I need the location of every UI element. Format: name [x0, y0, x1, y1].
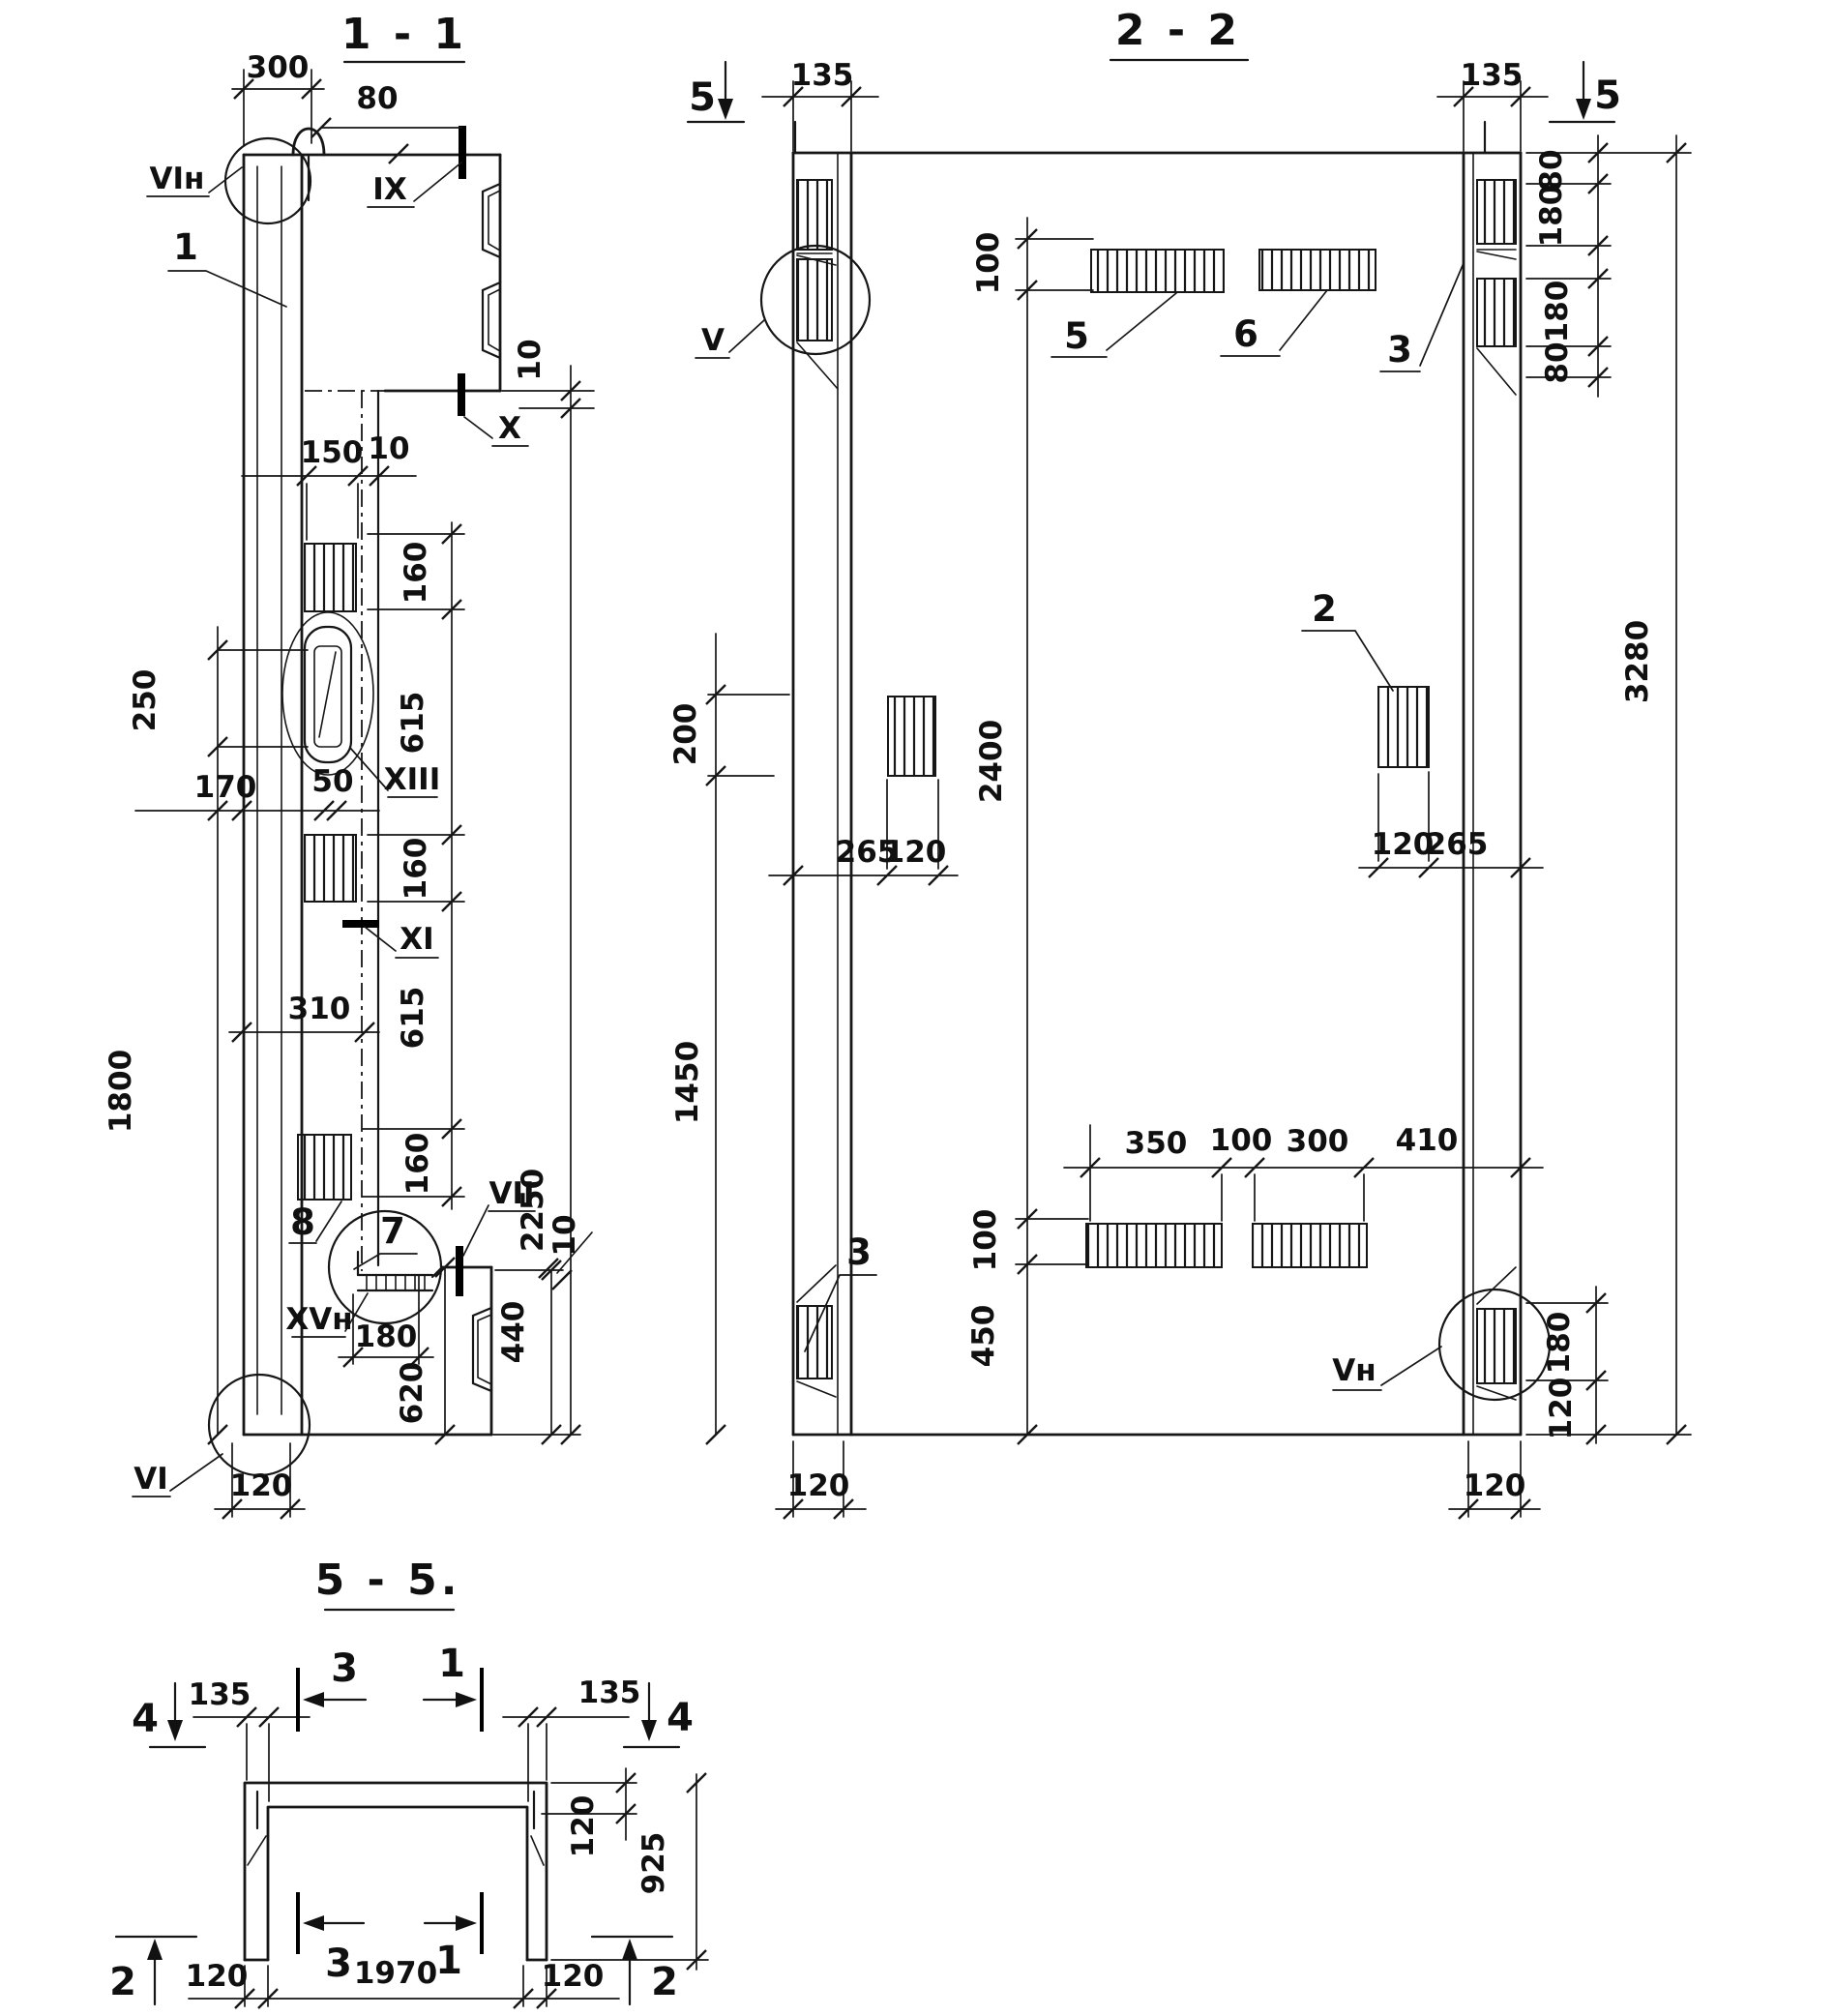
- dim-label: 10: [548, 1214, 582, 1256]
- callout-5: 5: [1051, 293, 1176, 357]
- dim-80: 80: [311, 81, 461, 163]
- dim-label: 135: [189, 1677, 252, 1712]
- dim-label: 120: [186, 1959, 249, 1994]
- dim-label: 250: [128, 669, 163, 732]
- dim-120-bottom-left: 120: [776, 1441, 866, 1519]
- dim-label: 160: [399, 542, 433, 605]
- dim-120-slab: 120: [542, 1768, 636, 1857]
- marker-label: 2: [651, 1960, 678, 2004]
- dim-300: 300: [232, 50, 324, 145]
- section-marker-5-left: 5: [688, 62, 744, 122]
- dim-label: 100: [1210, 1123, 1273, 1158]
- dim-label: 925: [636, 1832, 671, 1895]
- mark-label: XI: [400, 922, 433, 957]
- dim-label: 2400: [974, 720, 1009, 803]
- dim-label: 615: [396, 692, 430, 755]
- dim-label: 300: [1287, 1124, 1349, 1159]
- dim-label: 170: [194, 770, 257, 805]
- mark-label: X: [498, 411, 521, 446]
- section-1-1: 1 - 1: [104, 10, 594, 1519]
- dim-265-120-left: 265 120: [769, 780, 958, 885]
- callout-label: 6: [1233, 313, 1258, 355]
- dim-440: 440: [493, 1260, 580, 1444]
- dim-120-bottom-right: 120: [1449, 1441, 1540, 1519]
- dim-135-left: 135: [762, 58, 878, 151]
- dim-label: 200: [668, 703, 703, 766]
- dim-label: 620: [395, 1362, 429, 1425]
- section-2-2-title: 2 - 2: [1115, 6, 1241, 55]
- section-marker-5-right: 5: [1550, 62, 1621, 122]
- section-5-5-title: 5 - 5.: [315, 1556, 461, 1605]
- mark-label: Vн: [1332, 1353, 1376, 1388]
- cut-marker-3-top: 3: [298, 1646, 366, 1732]
- dim-label: 100: [971, 232, 1006, 295]
- marker-label: 4: [666, 1696, 694, 1740]
- dim-label: 10: [513, 339, 548, 380]
- dim-chain-bottom: 350 100 300 410: [1064, 1123, 1543, 1221]
- dim-label: 120: [787, 1468, 850, 1503]
- callout-7: 7: [354, 1210, 417, 1269]
- callout-label: 7: [380, 1210, 405, 1252]
- mark-vi: VI: [133, 1454, 222, 1497]
- dim-label: 160: [399, 838, 433, 901]
- callout-3-right: 3: [1380, 263, 1464, 371]
- section-2-2: 2 - 2: [668, 6, 1691, 1519]
- section-marker-2-right: 2: [592, 1937, 678, 2004]
- dim-label: 180: [1542, 1312, 1577, 1375]
- dim-label: 410: [1396, 1123, 1459, 1158]
- callout-2: 2: [1302, 588, 1393, 691]
- dim-chain-far-left: 200 1450: [668, 634, 789, 1444]
- mark-x: X: [464, 411, 528, 446]
- dim-120-265-right: 120 265: [1359, 772, 1543, 877]
- dim-label: 180: [1540, 281, 1575, 343]
- slot-detail: [282, 612, 373, 775]
- drawing-canvas: 1 - 1: [0, 0, 1835, 2016]
- dim-135-right: 135: [1437, 58, 1548, 151]
- dim-label: 100: [968, 1209, 1003, 1272]
- channel-outline: [245, 1783, 547, 1960]
- callout-label: 5: [1064, 315, 1089, 357]
- dim-label: 300: [247, 50, 310, 85]
- dim-label: 80: [1540, 341, 1575, 383]
- dim-label: 615: [396, 987, 430, 1050]
- mark-label: V: [701, 323, 725, 358]
- marker-label: 3: [331, 1646, 358, 1691]
- dim-label: 350: [1125, 1126, 1188, 1161]
- callout-label: 8: [290, 1201, 315, 1243]
- dim-10-top: 10 2250: [502, 339, 594, 1444]
- drawing-sheet: 1 - 1: [0, 0, 1835, 2016]
- mark-xiii: XIII: [350, 748, 440, 797]
- section-5-5: 5 - 5. 4 4 135 13: [109, 1556, 708, 2008]
- detail-circle-vin: [225, 138, 311, 223]
- marker-label: 2: [109, 1960, 136, 2004]
- mark-vn: Vн: [1332, 1347, 1441, 1390]
- dim-label: 265: [1426, 827, 1489, 862]
- mark-label: XVн: [285, 1302, 352, 1337]
- callout-label: 1: [173, 226, 198, 268]
- dim-120: 120: [215, 1443, 305, 1519]
- dim-label: 135: [791, 58, 854, 93]
- dim-label: 160: [400, 1133, 435, 1196]
- dim-label: 120: [1464, 1468, 1526, 1503]
- dim-10-bottom: 10: [539, 1214, 592, 1290]
- mark-label: XIII: [384, 762, 441, 797]
- mark-label: IX: [372, 172, 407, 207]
- callout-label: 3: [1387, 329, 1412, 371]
- dim-label: 180: [355, 1319, 418, 1354]
- dim-label: 120: [566, 1795, 601, 1858]
- marker-label: 5: [1594, 74, 1621, 118]
- dim-chain-center: 100 2400 100 450: [966, 218, 1093, 1444]
- callout-6: 6: [1221, 290, 1327, 356]
- callout-label: 3: [846, 1231, 872, 1273]
- marker-label: 3: [325, 1942, 352, 1986]
- dim-label: 120: [542, 1959, 605, 1994]
- dim-label: 120: [884, 835, 947, 870]
- callout-8: 8: [289, 1201, 341, 1243]
- dim-label: 450: [966, 1305, 1001, 1368]
- marker-label: 1: [438, 1642, 465, 1686]
- dim-label: 120: [230, 1468, 293, 1503]
- dim-label: 1970: [354, 1956, 437, 1991]
- dim-label: 3280: [1620, 620, 1655, 703]
- mark-v: V: [696, 320, 764, 358]
- dim-label: 1450: [670, 1041, 705, 1124]
- dim-label: 135: [1461, 58, 1524, 93]
- mark-label: VI: [133, 1462, 168, 1497]
- marker-label: 4: [132, 1697, 159, 1741]
- mark-label: VII: [488, 1176, 534, 1211]
- callout-label: 2: [1312, 588, 1337, 630]
- panel-outline-1-1: [244, 129, 500, 1435]
- dim-chain-right-top: 80 180 180 80: [1526, 135, 1611, 397]
- dim-310: 310: [229, 992, 379, 1042]
- section-marker-2-left: 2: [109, 1937, 196, 2004]
- dim-label: 80: [356, 81, 398, 116]
- dim-label: 1800: [104, 1050, 138, 1133]
- mesh-strips: [888, 250, 1429, 1267]
- detail-circle-vi: [209, 1375, 310, 1475]
- dim-label: 10: [368, 431, 409, 466]
- dim-label: 120: [1372, 827, 1435, 862]
- cut-marker-1-top: 1: [424, 1642, 482, 1732]
- marker-label: 5: [689, 75, 716, 120]
- marker-label: 1: [435, 1939, 462, 1983]
- dim-label: 180: [1534, 185, 1569, 248]
- section-1-1-title: 1 - 1: [341, 10, 467, 59]
- dim-label: 50: [311, 764, 353, 799]
- dim-label: 120: [1544, 1378, 1579, 1440]
- callout-1: 1: [168, 226, 286, 307]
- dim-chain-left: 250 1800: [104, 627, 308, 1444]
- dim-label: 135: [578, 1675, 641, 1710]
- mark-ix: IX: [368, 163, 461, 207]
- dim-150-10: 150 10: [242, 431, 416, 540]
- dim-label: 150: [301, 435, 364, 470]
- mark-label: VIн: [150, 162, 205, 196]
- dim-label: 440: [496, 1301, 531, 1364]
- dim-chain-bottom-55: 120 1970 120: [186, 1956, 619, 2008]
- dim-label: 310: [288, 992, 351, 1026]
